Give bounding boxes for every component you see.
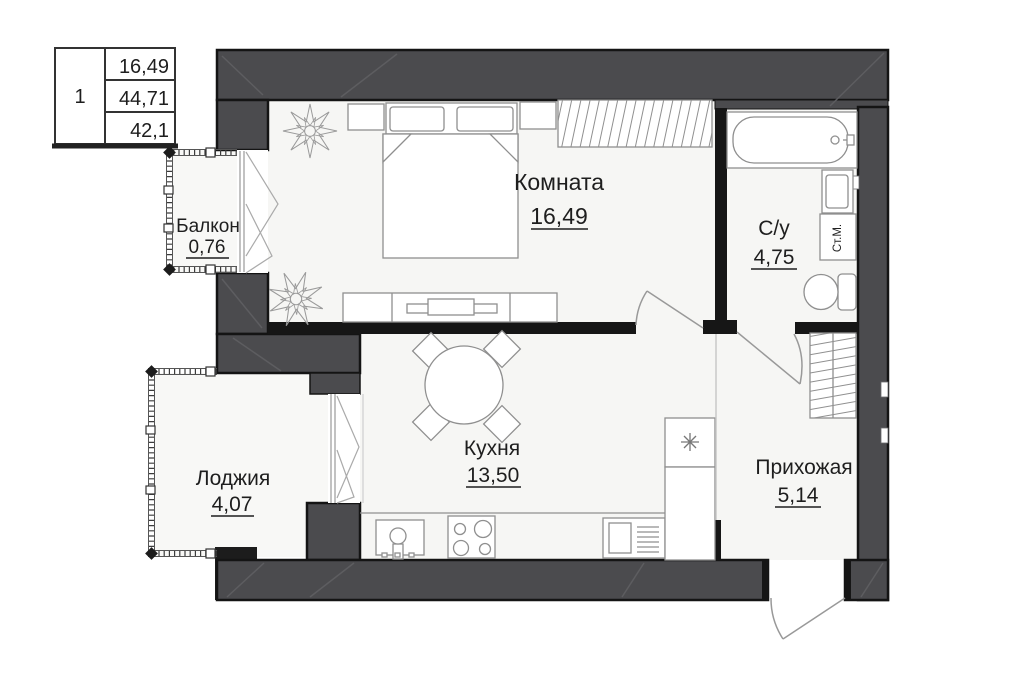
- label-balcony: Балкон: [176, 216, 240, 237]
- toilet: [804, 274, 856, 310]
- table-value-3: 42,1: [130, 120, 169, 142]
- wall-bottom-left: [217, 560, 768, 600]
- partition-room-bathroom: [715, 108, 727, 322]
- area-balcony: 0,76: [189, 237, 226, 258]
- bathroom-sink: [822, 170, 853, 213]
- nightstand-right: [520, 102, 556, 129]
- area-loggia: 4,07: [212, 493, 253, 516]
- wall-top: [217, 50, 888, 100]
- tv: [428, 299, 474, 315]
- label-hallway: Прихожая: [755, 456, 852, 479]
- wardrobe-hallway: [810, 333, 856, 418]
- floor-plan-svg: Комната 16,49 С/у 4,75 Кухня 13,50 Прихо…: [0, 0, 1024, 687]
- wall-left-upper: [217, 100, 268, 150]
- kitchen-sink: [376, 520, 424, 559]
- bed: [383, 103, 518, 258]
- pillow: [390, 107, 444, 131]
- table-value-2: 44,71: [119, 88, 169, 110]
- faucet: [847, 135, 854, 145]
- wall-loggia-window-top: [310, 373, 360, 394]
- table-value-1: 16,49: [119, 56, 169, 78]
- floor-loggia: [155, 373, 328, 557]
- dining-table: [425, 346, 503, 424]
- loggia-window: [328, 394, 363, 503]
- table-apartment-number: 1: [74, 86, 85, 108]
- partition-room-kitchen: [268, 322, 636, 334]
- area-hallway: 5,14: [778, 484, 819, 507]
- floor-entrance-opening: [768, 560, 845, 600]
- wall-loggia-bottom: [307, 503, 360, 560]
- partition-bathroom-hallway: [795, 322, 858, 334]
- area-room: 16,49: [530, 203, 588, 229]
- label-bathroom: С/у: [758, 217, 790, 240]
- floor-doorway-bathroom: [737, 318, 795, 336]
- nightstand-left: [348, 104, 384, 130]
- wardrobe-room: [558, 100, 712, 147]
- entrance-jamb-right: [845, 560, 851, 600]
- wall-room-kitchen-block: [217, 334, 360, 373]
- tv-stand: [343, 293, 557, 322]
- dishwasher: [603, 518, 665, 558]
- fridge: [665, 418, 715, 467]
- bathtub: [727, 112, 857, 168]
- floor-plan-page: Комната 16,49 С/у 4,75 Кухня 13,50 Прихо…: [0, 0, 1024, 687]
- partition-t-junction: [703, 320, 737, 334]
- wall-right: [858, 107, 888, 600]
- label-washing-machine: Ст.М.: [832, 224, 844, 252]
- area-kitchen: 13,50: [467, 464, 520, 487]
- door-entrance: [771, 598, 845, 639]
- toilet-bowl: [804, 275, 838, 310]
- label-loggia: Лоджия: [196, 467, 270, 490]
- toilet-tank: [838, 274, 856, 310]
- pillow: [457, 107, 513, 131]
- label-room: Комната: [514, 169, 604, 195]
- summary-table: 1 16,49 44,71 42,1: [52, 48, 178, 146]
- stove: [448, 516, 495, 558]
- tall-cabinet: [665, 467, 715, 560]
- entrance-jamb-left: [762, 560, 768, 600]
- area-bathroom: 4,75: [754, 246, 795, 269]
- label-kitchen: Кухня: [464, 437, 520, 460]
